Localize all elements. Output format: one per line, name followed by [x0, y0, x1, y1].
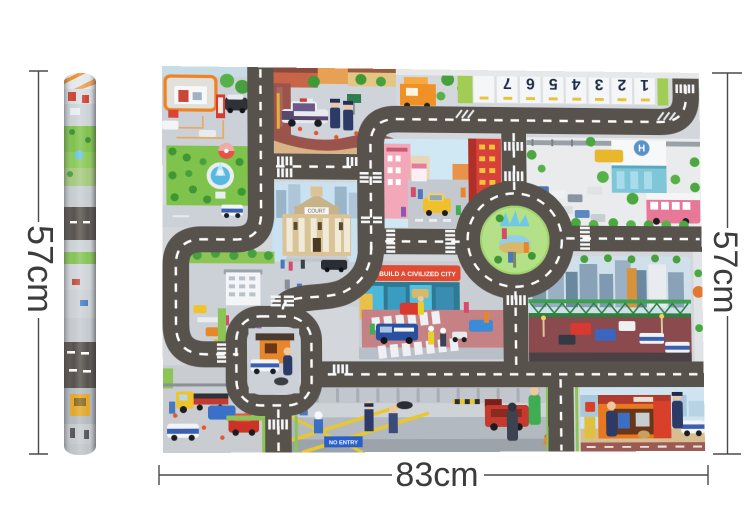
svg-text:NO ENTRY: NO ENTRY: [329, 440, 358, 446]
svg-text:1: 1: [640, 76, 649, 93]
svg-text:COURT: COURT: [308, 209, 326, 215]
svg-text:H: H: [638, 144, 645, 155]
svg-text:57cm: 57cm: [706, 230, 744, 313]
svg-text:5: 5: [549, 75, 558, 93]
svg-text:4: 4: [572, 75, 581, 93]
svg-text:83cm: 83cm: [395, 456, 478, 494]
svg-text:6: 6: [526, 75, 535, 93]
svg-text:7: 7: [503, 74, 512, 92]
svg-text:57cm: 57cm: [20, 225, 61, 313]
svg-text:3: 3: [595, 76, 604, 93]
svg-text:2: 2: [617, 76, 626, 93]
svg-text:BUILD A CIVILIZED CITY: BUILD A CIVILIZED CITY: [379, 271, 456, 278]
